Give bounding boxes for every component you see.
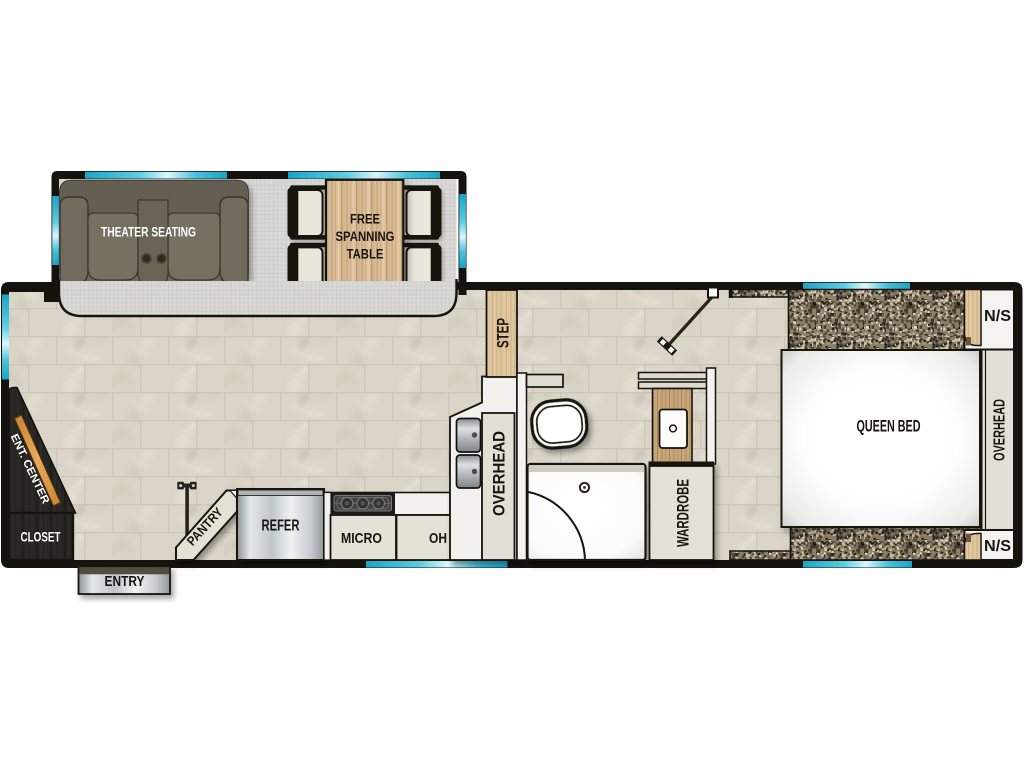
svg-text:THEATER SEATING: THEATER SEATING	[101, 224, 196, 240]
svg-text:TABLE: TABLE	[347, 247, 384, 262]
svg-text:QUEEN BED: QUEEN BED	[857, 418, 921, 436]
svg-text:FREE: FREE	[350, 212, 380, 227]
svg-text:SPANNING: SPANNING	[336, 229, 395, 244]
svg-text:REFER: REFER	[262, 518, 300, 535]
svg-text:STEP: STEP	[494, 318, 513, 348]
svg-text:CLOSET: CLOSET	[21, 530, 62, 545]
svg-text:MICRO: MICRO	[341, 530, 382, 547]
svg-text:WARDROBE: WARDROBE	[674, 479, 693, 547]
svg-text:OVERHEAD: OVERHEAD	[491, 431, 509, 516]
svg-text:N/S: N/S	[984, 538, 1011, 555]
svg-text:OH: OH	[429, 530, 447, 547]
svg-text:ENTRY: ENTRY	[105, 573, 145, 590]
svg-text:OVERHEAD: OVERHEAD	[992, 399, 1009, 461]
svg-text:N/S: N/S	[984, 308, 1011, 325]
